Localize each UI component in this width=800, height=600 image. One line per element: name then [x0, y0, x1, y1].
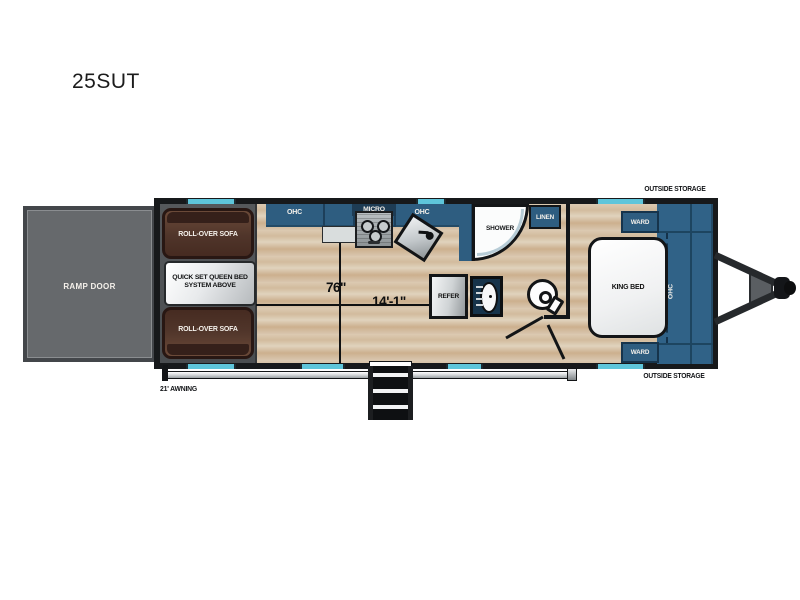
cabinet-seam [323, 204, 325, 227]
window-top-bedroom [596, 199, 645, 204]
faucet-spout [418, 231, 428, 235]
shower-label: SHOWER [478, 225, 522, 232]
cabinet-seam [657, 343, 713, 345]
quick-set-queen-bed-label: QUICK SET QUEEN BED SYSTEM ABOVE [168, 274, 252, 290]
entry-steps [368, 366, 413, 420]
window-bottom-bath [446, 364, 483, 369]
dimension-14-1: 14'-1" [360, 294, 418, 310]
wardrobe-bottom-label: WARD [623, 349, 657, 356]
outside-storage-top-label: OUTSIDE STORAGE [626, 186, 725, 194]
window-top-garage [186, 199, 236, 204]
ramp-door-label: RAMP DOOR [27, 282, 152, 291]
step-tread [373, 373, 408, 377]
step-tread [373, 389, 408, 393]
roll-over-sofa-bottom-label: ROLL-OVER SOFA [165, 326, 251, 334]
hitch-arm-top [715, 255, 780, 285]
awning-arm [163, 365, 168, 380]
ohc-right-label: OHC [396, 209, 448, 217]
roll-over-sofa-top-label: ROLL-OVER SOFA [165, 231, 251, 239]
hitch-coupler [774, 277, 790, 299]
bath-wall-cabinet [459, 204, 473, 261]
cooktop-stove [355, 211, 393, 248]
wardrobe-bottom: WARD [621, 342, 659, 363]
ramp-door: RAMP DOOR [23, 206, 156, 362]
linen-label: LINEN [531, 214, 559, 221]
sofa-backrest [167, 344, 249, 355]
wardrobe-top-label: WARD [623, 219, 657, 226]
outside-storage-bottom-label: OUTSIDE STORAGE [625, 373, 724, 381]
bath-vanity-sink [470, 276, 503, 317]
window-bottom-kitchen [300, 364, 345, 369]
stove-vent [368, 241, 380, 244]
king-bed-label: KING BED [591, 284, 665, 292]
bedroom-ohc-label: OHC [668, 270, 675, 314]
dimension-76: 76" [312, 280, 360, 296]
roll-over-sofa-top: ROLL-OVER SOFA [162, 208, 254, 259]
floorplan-page: { "title": "25SUT", "plan": { "ramp_door… [0, 0, 800, 600]
refrigerator: REFER [429, 274, 468, 319]
propane-cover [750, 272, 772, 305]
refrigerator-label: REFER [432, 293, 465, 300]
awning-bar [165, 371, 569, 379]
quick-set-queen-bed: QUICK SET QUEEN BED SYSTEM ABOVE [164, 261, 256, 306]
bath-wall-stub [544, 315, 570, 319]
awning-label: 21' AWNING [160, 385, 221, 393]
wardrobe-top: WARD [621, 211, 659, 233]
window-bottom-garage [186, 364, 236, 369]
bedroom-ohc: OHC [661, 270, 681, 314]
vanity-detail [476, 286, 483, 308]
window-bottom-bedroom [596, 364, 645, 369]
linen-cabinet: LINEN [529, 205, 561, 229]
hitch-arm-bottom [715, 292, 780, 322]
trailer-hitch [714, 246, 800, 332]
king-bed: KING BED [588, 237, 668, 338]
kitchen-counter [322, 226, 356, 243]
model-title: 25SUT [72, 70, 140, 94]
bath-partition-wall [566, 204, 570, 319]
sofa-backrest [167, 212, 249, 223]
cabinet-seam [690, 204, 692, 364]
ohc-left-label: OHC [266, 209, 323, 217]
roll-over-sofa-bottom: ROLL-OVER SOFA [162, 307, 254, 359]
sink-drain [489, 295, 492, 298]
hitch-ball-socket [784, 281, 796, 295]
step-tread [373, 405, 408, 409]
awning-end-cap-right [567, 368, 577, 381]
